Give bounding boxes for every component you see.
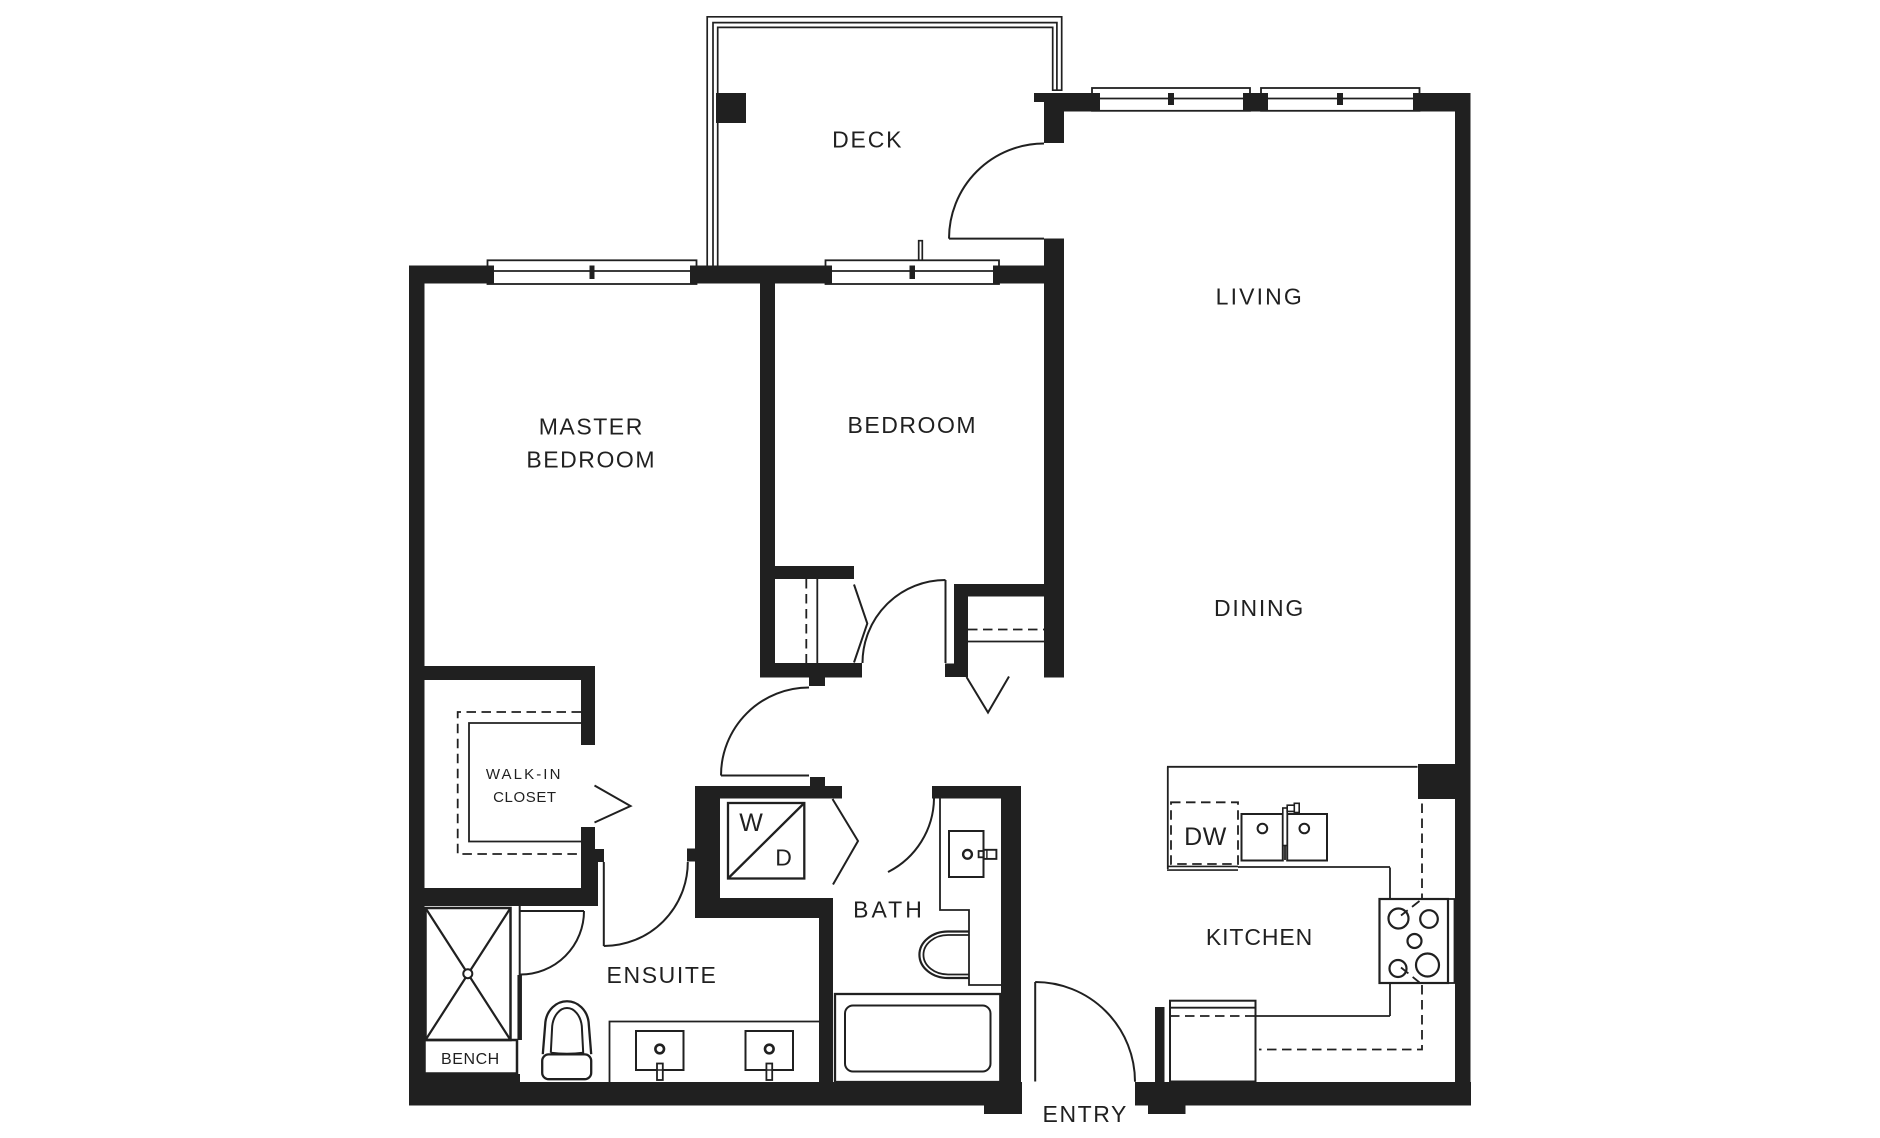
- svg-text:DECK: DECK: [832, 127, 903, 153]
- svg-text:BEDROOM: BEDROOM: [847, 412, 977, 438]
- svg-text:ENSUITE: ENSUITE: [607, 962, 718, 988]
- svg-text:CLOSET: CLOSET: [493, 789, 557, 806]
- svg-text:BENCH: BENCH: [441, 1051, 500, 1068]
- svg-text:D: D: [775, 845, 792, 871]
- svg-text:KITCHEN: KITCHEN: [1206, 924, 1313, 950]
- svg-text:LIVING: LIVING: [1216, 284, 1304, 310]
- svg-text:BEDROOM: BEDROOM: [526, 447, 656, 473]
- svg-text:BATH: BATH: [853, 896, 925, 922]
- svg-text:WALK-IN: WALK-IN: [486, 766, 563, 783]
- svg-text:MASTER: MASTER: [539, 413, 644, 439]
- svg-text:DW: DW: [1184, 823, 1227, 851]
- svg-text:DINING: DINING: [1214, 595, 1305, 621]
- svg-text:W: W: [739, 809, 763, 837]
- svg-text:ENTRY: ENTRY: [1043, 1101, 1128, 1127]
